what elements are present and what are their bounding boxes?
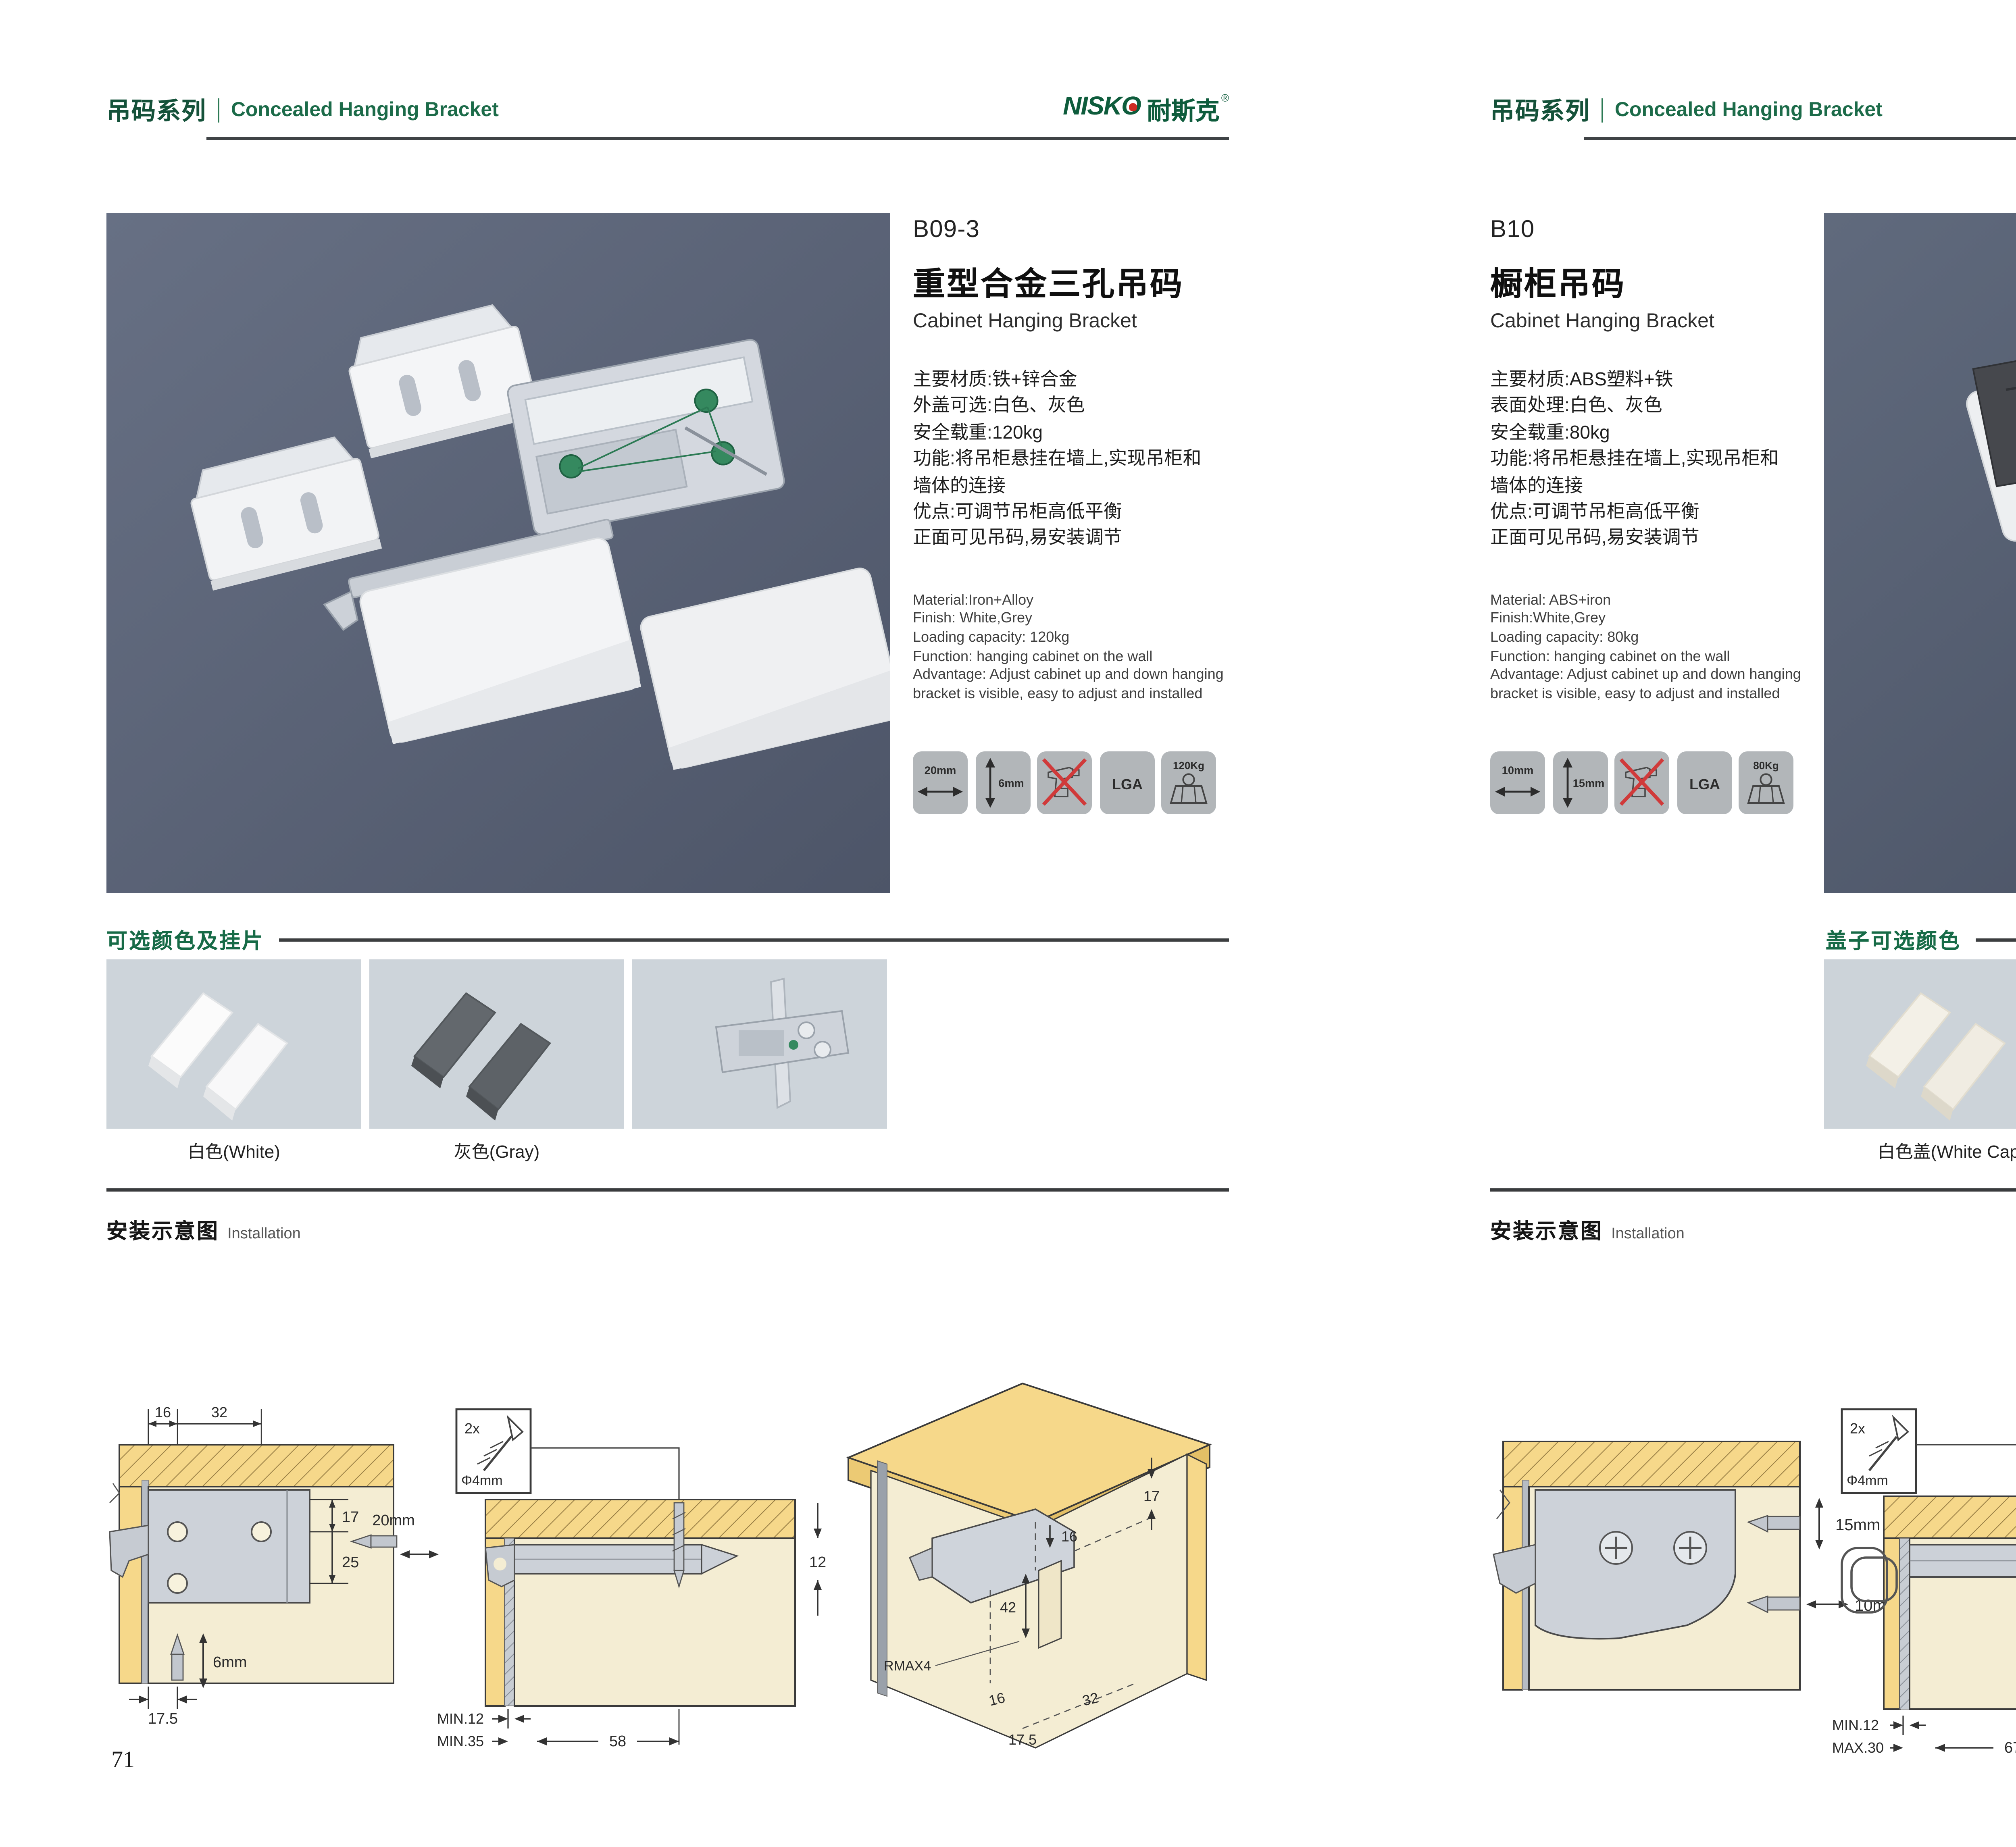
no-drill-icon xyxy=(1037,752,1092,815)
svg-text:32: 32 xyxy=(211,1404,227,1421)
svg-text:LGA: LGA xyxy=(1111,777,1142,793)
page-72: 吊码系列 Concealed Hanging Bracket NISKO 耐斯克… xyxy=(1490,90,2016,1803)
swatch-bracket xyxy=(632,959,887,1129)
swatch-gray xyxy=(369,959,624,1129)
svg-text:20mm: 20mm xyxy=(372,1512,415,1529)
heading-rule xyxy=(1976,938,2016,942)
spec-line: Finish:White,Grey xyxy=(1490,610,1806,629)
product-name-cn: 重型合金三孔吊码 xyxy=(913,258,1235,305)
svg-text:25: 25 xyxy=(342,1554,359,1571)
section-divider xyxy=(1490,1188,2016,1192)
spec-line: 安全载重:120kg xyxy=(913,420,1235,447)
colors-heading: 盖子可选颜色 xyxy=(1826,924,2016,955)
series-title: 吊码系列 Concealed Hanging Bracket xyxy=(106,93,499,127)
svg-text:17.5: 17.5 xyxy=(1008,1731,1037,1748)
spec-line: Loading capacity: 80kg xyxy=(1490,629,1806,647)
page-header: 吊码系列 Concealed Hanging Bracket NISKO 耐斯克… xyxy=(1490,90,2016,129)
product-name-en: Cabinet Hanging Bracket xyxy=(913,310,1235,332)
svg-text:58: 58 xyxy=(609,1733,626,1750)
svg-text:17: 17 xyxy=(1143,1488,1160,1504)
series-title-cn: 吊码系列 xyxy=(1490,93,1590,127)
spec-line: bracket is visible, easy to adjust and i… xyxy=(913,685,1229,703)
svg-text:15mm: 15mm xyxy=(1572,778,1604,790)
spec-line: 功能:将吊柜悬挂在墙上,实现吊柜和 xyxy=(913,447,1235,474)
spec-lines-en: Material:Iron+Alloy Finish: White,Grey L… xyxy=(913,591,1229,703)
section-divider xyxy=(106,1188,1229,1192)
product-photo xyxy=(1824,213,2016,893)
swatch-label: 白色盖(White Cap) xyxy=(1824,1138,2016,1164)
svg-text:12: 12 xyxy=(809,1554,826,1571)
installation-diagram-2: 2x Φ4mm 18 MIN.12 xyxy=(1832,1400,2016,1758)
heading-rule xyxy=(279,938,1229,942)
spec-line: bracket is visible, easy to adjust and i… xyxy=(1490,685,1806,703)
swatch-label: 白色(White) xyxy=(106,1138,361,1164)
width-icon: 20mm xyxy=(913,752,968,815)
spec-lines-en: Material: ABS+iron Finish:White,Grey Loa… xyxy=(1490,591,1806,703)
divider-bar xyxy=(218,98,220,122)
svg-text:LGA: LGA xyxy=(1689,777,1719,793)
screw-spec: 2x Φ4mm xyxy=(1842,1409,1916,1493)
svg-text:120Kg: 120Kg xyxy=(1173,760,1204,772)
page-number: 71 xyxy=(111,1748,135,1775)
spec-line: 优点:可调节吊柜高低平衡 xyxy=(913,500,1235,526)
page-71: 吊码系列 Concealed Hanging Bracket NISKO 耐斯克… xyxy=(106,90,1229,1803)
svg-text:17: 17 xyxy=(342,1509,359,1526)
no-drill-icon xyxy=(1614,752,1669,815)
swatch-white xyxy=(106,959,361,1129)
page-header: 吊码系列 Concealed Hanging Bracket NISKO 耐斯克… xyxy=(106,90,1229,129)
svg-text:80Kg: 80Kg xyxy=(1753,760,1779,772)
svg-text:67: 67 xyxy=(2004,1739,2016,1756)
installation-diagram-3: 17 16 42 RMAX4 16 32 17.5 xyxy=(829,1364,1229,1759)
swatch-white-cap xyxy=(1824,959,2016,1129)
product-code: B09-3 xyxy=(913,216,1235,243)
width-icon: 10mm xyxy=(1490,752,1545,815)
product-photo xyxy=(106,213,890,893)
lga-icon: LGA xyxy=(1677,752,1731,815)
spec-line: Advantage: Adjust cabinet up and down ha… xyxy=(913,666,1229,685)
screw-spec: 2x Φ4mm xyxy=(456,1409,531,1493)
lga-icon: LGA xyxy=(1099,752,1154,815)
spec-line: Function: hanging cabinet on the wall xyxy=(1490,648,1806,666)
spec-line: Loading capacity: 120kg xyxy=(913,629,1229,647)
svg-text:16: 16 xyxy=(1061,1528,1077,1545)
header-rule xyxy=(1584,137,2016,140)
svg-text:MIN.12: MIN.12 xyxy=(1832,1717,1879,1733)
installation-heading: 安装示意图 Installation xyxy=(1490,1214,1685,1245)
swatch-row xyxy=(1824,959,2016,1129)
spec-line: 正面可见吊码,易安装调节 xyxy=(913,526,1235,553)
brand-logo: NISKO 耐斯克 ® xyxy=(1063,93,1229,127)
icon-row: 20mm 6mm xyxy=(913,752,1235,815)
svg-text:MIN.12: MIN.12 xyxy=(437,1710,484,1727)
spec-line: Advantage: Adjust cabinet up and down ha… xyxy=(1490,666,1806,685)
catalog-spread: 吊码系列 Concealed Hanging Bracket NISKO 耐斯克… xyxy=(0,0,2016,1847)
colors-heading: 可选颜色及挂片 xyxy=(106,924,1229,955)
spec-line: Material: ABS+iron xyxy=(1490,591,1806,610)
svg-text:6mm: 6mm xyxy=(998,778,1023,790)
brand-logo-latin: NISKO xyxy=(1063,93,1141,122)
svg-text:17.5: 17.5 xyxy=(148,1710,178,1727)
spec-line: Function: hanging cabinet on the wall xyxy=(913,648,1229,666)
product-info: B09-3 重型合金三孔吊码 Cabinet Hanging Bracket 主… xyxy=(913,216,1235,815)
header-rule xyxy=(206,137,1229,140)
svg-text:Φ4mm: Φ4mm xyxy=(461,1473,503,1488)
svg-text:Φ4mm: Φ4mm xyxy=(1847,1473,1888,1488)
svg-text:6mm: 6mm xyxy=(213,1654,247,1671)
spec-line: 墙体的连接 xyxy=(913,474,1235,500)
svg-text:10mm: 10mm xyxy=(1502,765,1534,777)
registered-mark-icon: ® xyxy=(1221,93,1229,104)
spec-lines-cn: 主要材质:铁+锌合金 外盖可选:白色、灰色 安全载重:120kg 功能:将吊柜悬… xyxy=(913,368,1235,553)
svg-text:42: 42 xyxy=(1000,1599,1016,1616)
series-title-en: Concealed Hanging Bracket xyxy=(1615,98,1883,121)
installation-diagram-1: 16 32 17 25 xyxy=(106,1400,445,1728)
height-icon: 6mm xyxy=(975,752,1030,815)
brand-logo-cn: 耐斯克 xyxy=(1147,93,1220,127)
series-title-cn: 吊码系列 xyxy=(106,93,206,127)
spec-line: Finish: White,Grey xyxy=(913,610,1229,629)
swatch-row xyxy=(106,959,887,1129)
installation-diagram-2: 2x Φ4mm 12 xyxy=(437,1400,832,1753)
divider-bar xyxy=(1602,98,1604,122)
spec-line: 外盖可选:白色、灰色 xyxy=(913,394,1235,421)
load-icon: 120Kg xyxy=(1161,752,1216,815)
series-title-en: Concealed Hanging Bracket xyxy=(231,98,499,121)
swatch-label: 灰色(Gray) xyxy=(369,1138,624,1164)
spec-line: Material:Iron+Alloy xyxy=(913,591,1229,610)
series-title: 吊码系列 Concealed Hanging Bracket xyxy=(1490,93,1883,127)
height-icon: 15mm xyxy=(1552,752,1607,815)
svg-text:16: 16 xyxy=(155,1404,171,1421)
installation-heading: 安装示意图 Installation xyxy=(106,1214,301,1245)
svg-text:MIN.35: MIN.35 xyxy=(437,1733,484,1749)
load-icon: 80Kg xyxy=(1739,752,1793,815)
svg-text:2x: 2x xyxy=(1850,1420,1865,1437)
svg-text:RMAX4: RMAX4 xyxy=(884,1658,931,1674)
svg-text:20mm: 20mm xyxy=(925,765,956,777)
svg-text:MAX.30: MAX.30 xyxy=(1832,1739,1884,1756)
svg-text:2x: 2x xyxy=(464,1420,480,1437)
spec-line: 主要材质:铁+锌合金 xyxy=(913,368,1235,394)
